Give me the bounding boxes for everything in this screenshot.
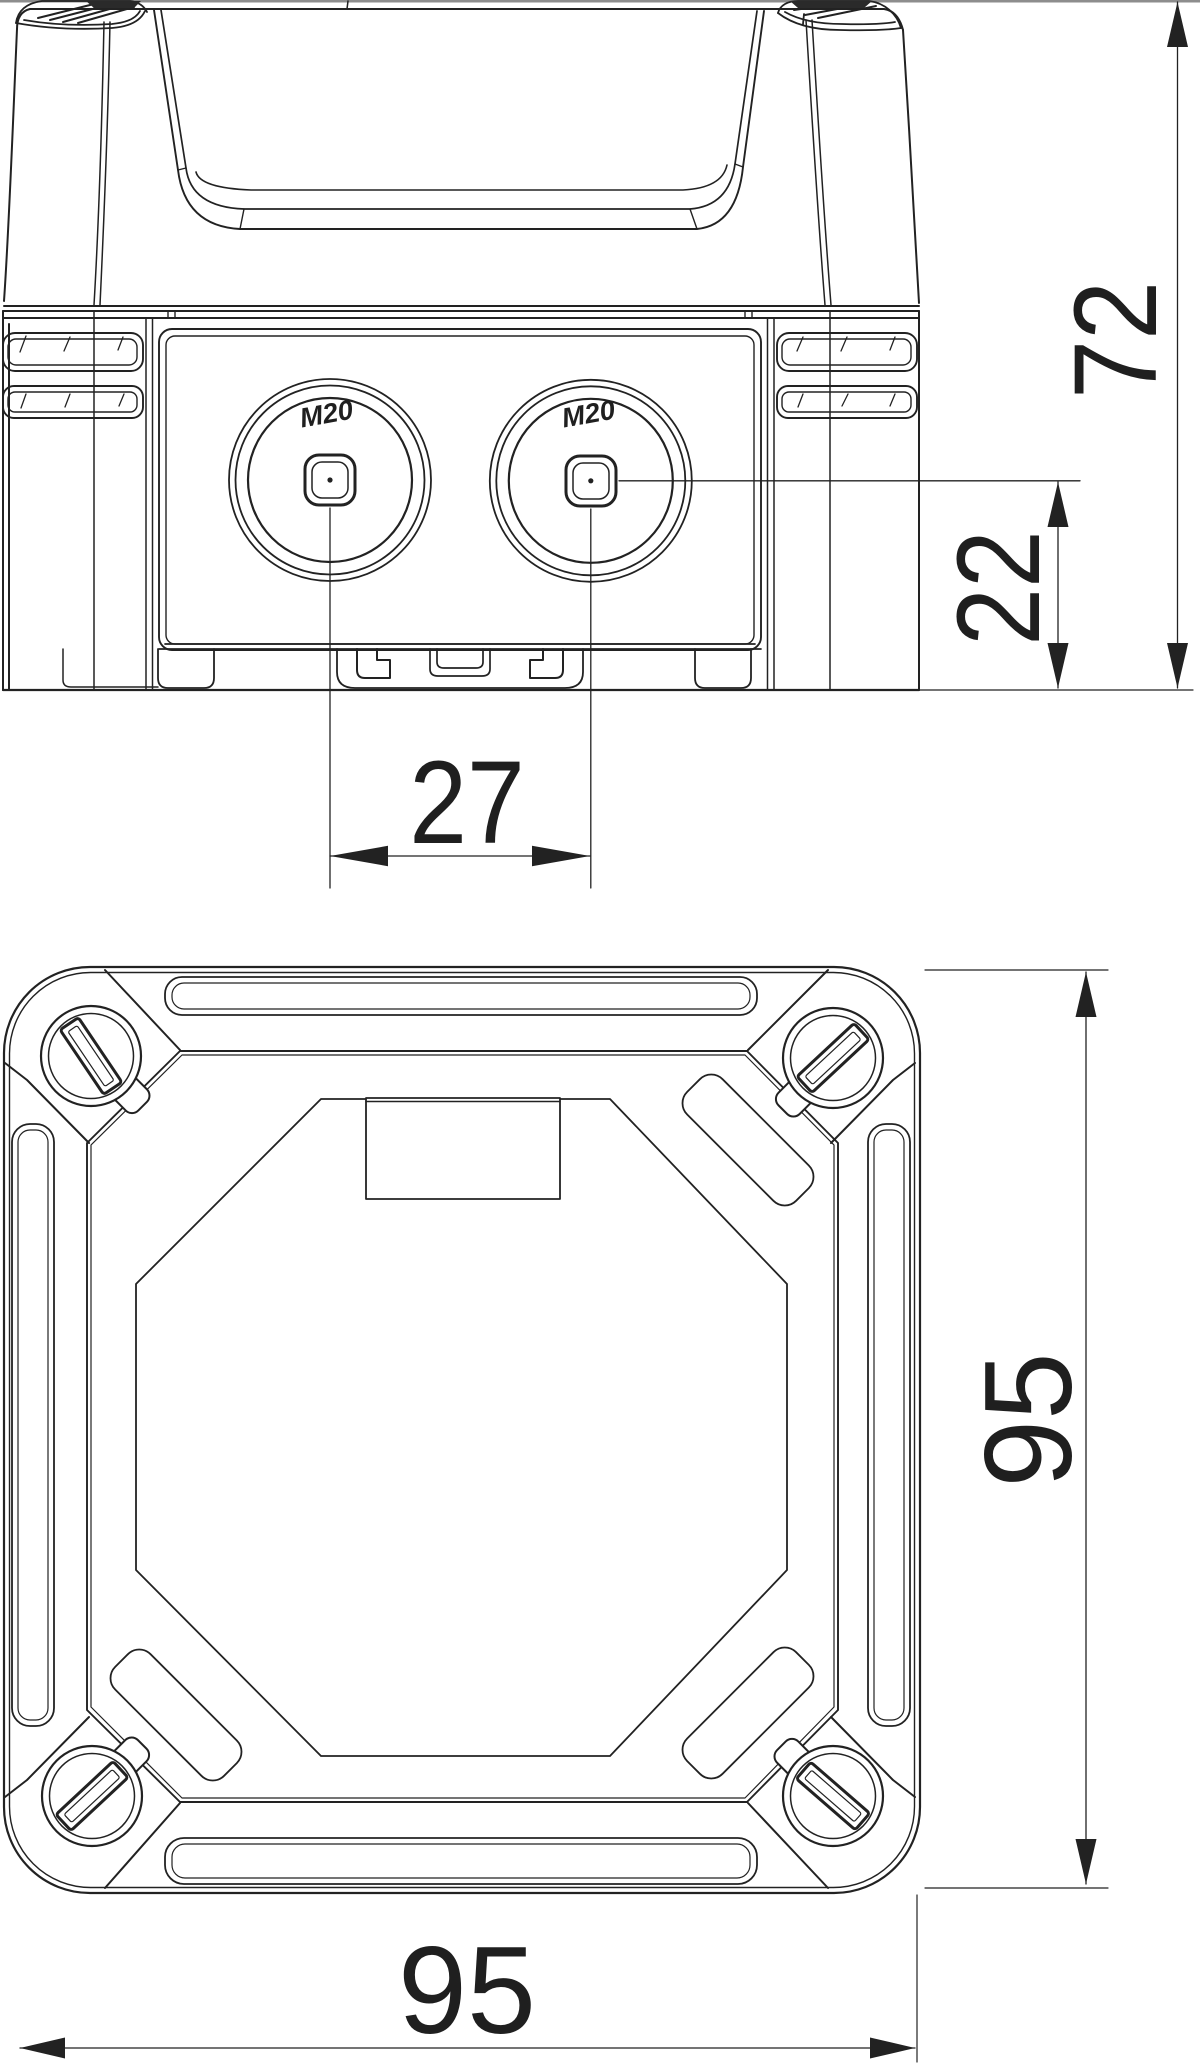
svg-text:27: 27 xyxy=(409,736,524,869)
svg-text:95: 95 xyxy=(960,1352,1098,1487)
svg-text:22: 22 xyxy=(932,530,1065,645)
svg-text:95: 95 xyxy=(398,1922,536,2060)
svg-text:72: 72 xyxy=(1049,281,1181,399)
